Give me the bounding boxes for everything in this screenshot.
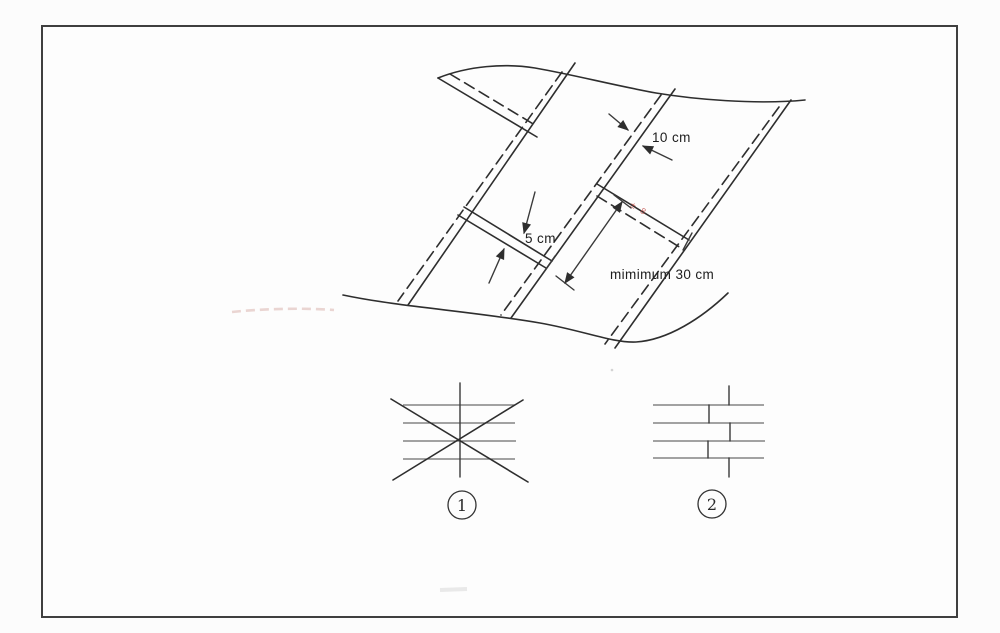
sym1-number: 1 <box>457 496 467 515</box>
dim-30cm-label: mimimum 30 cm <box>610 267 714 282</box>
dim-5cm-label: 5 cm <box>525 231 556 246</box>
scanned-page: 10 cm 5 cm mimimum 30 cm ± 8 <box>0 0 1000 633</box>
faint-speck <box>611 369 614 372</box>
figure-canvas: 10 cm 5 cm mimimum 30 cm ± 8 <box>0 0 1000 633</box>
dim-10cm-label: 10 cm <box>652 130 691 145</box>
sym2-number: 2 <box>707 495 717 514</box>
faint-gray-smudge <box>440 589 467 590</box>
